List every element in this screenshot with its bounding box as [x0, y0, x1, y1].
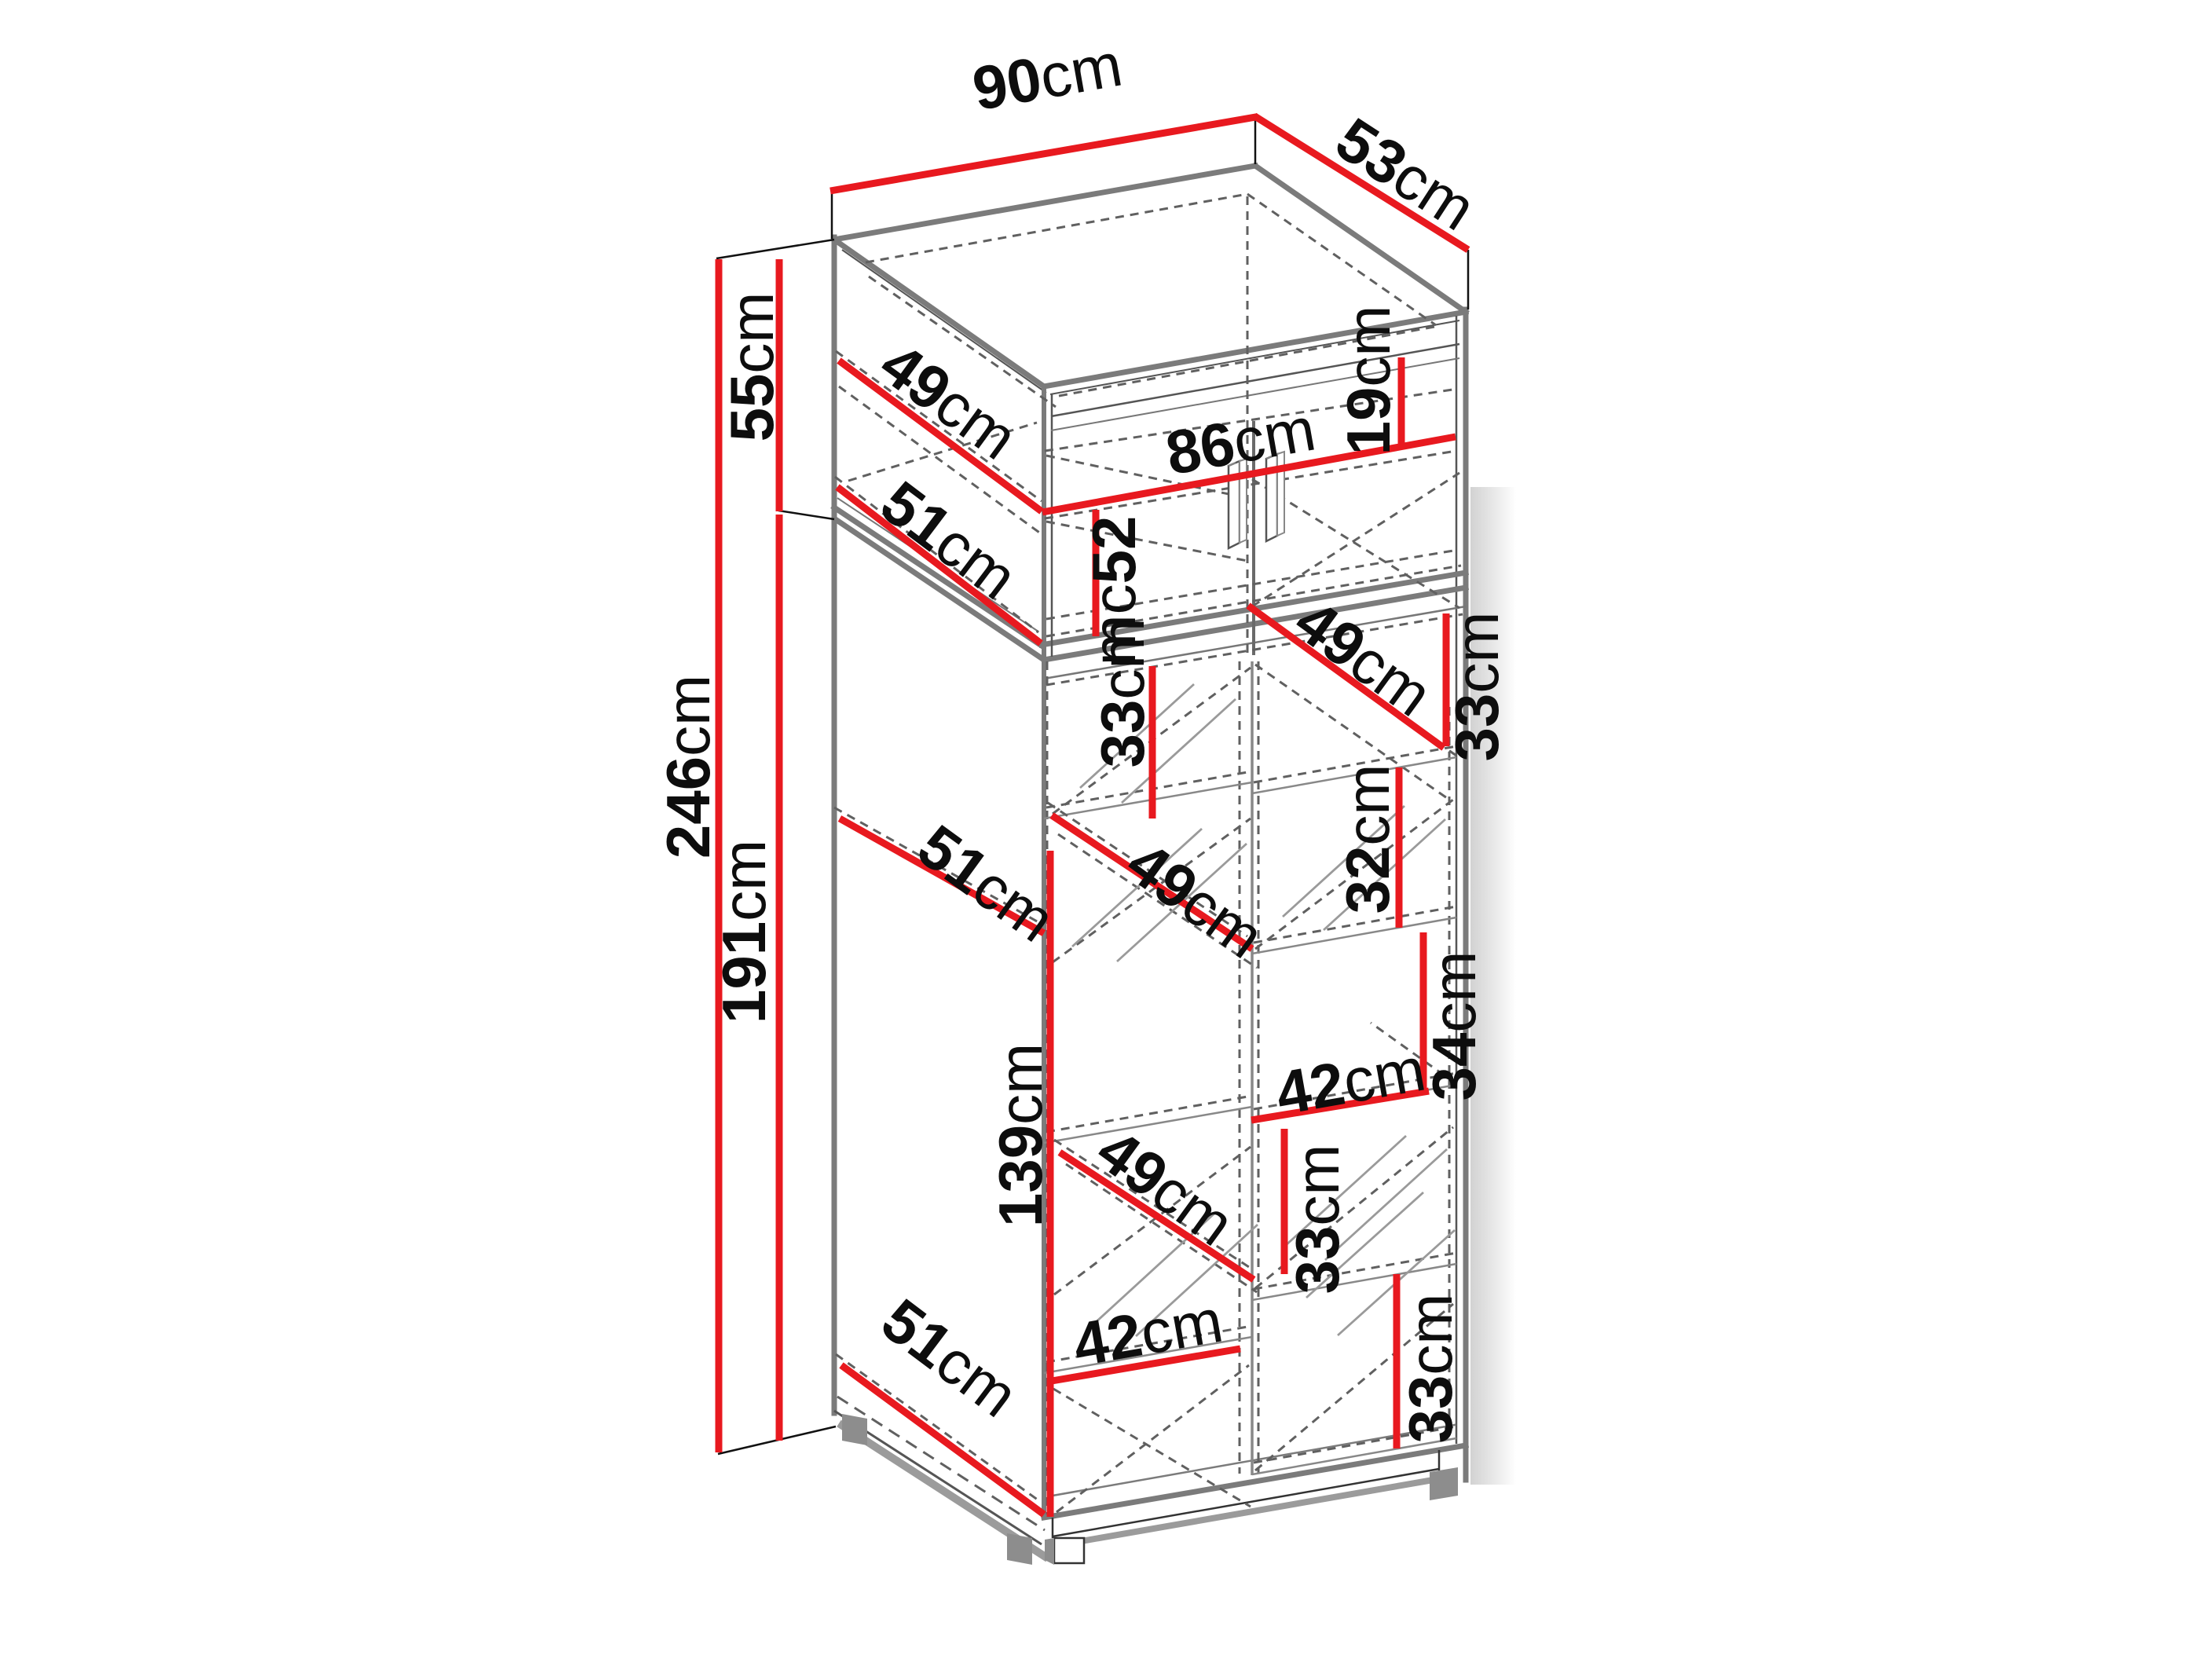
svg-text:19cm: 19cm: [1334, 306, 1403, 456]
svg-text:33cm: 33cm: [1442, 612, 1511, 762]
svg-text:34cm: 34cm: [1419, 951, 1489, 1101]
svg-text:33cm: 33cm: [1283, 1144, 1352, 1295]
svg-text:55cm: 55cm: [717, 292, 786, 442]
svg-text:139cm: 139cm: [986, 1043, 1055, 1227]
svg-text:246cm: 246cm: [654, 675, 723, 859]
svg-text:33cm: 33cm: [1396, 1294, 1465, 1444]
svg-text:33cm: 33cm: [1088, 618, 1157, 768]
svg-text:32cm: 32cm: [1333, 764, 1402, 914]
svg-text:191cm: 191cm: [709, 840, 778, 1024]
